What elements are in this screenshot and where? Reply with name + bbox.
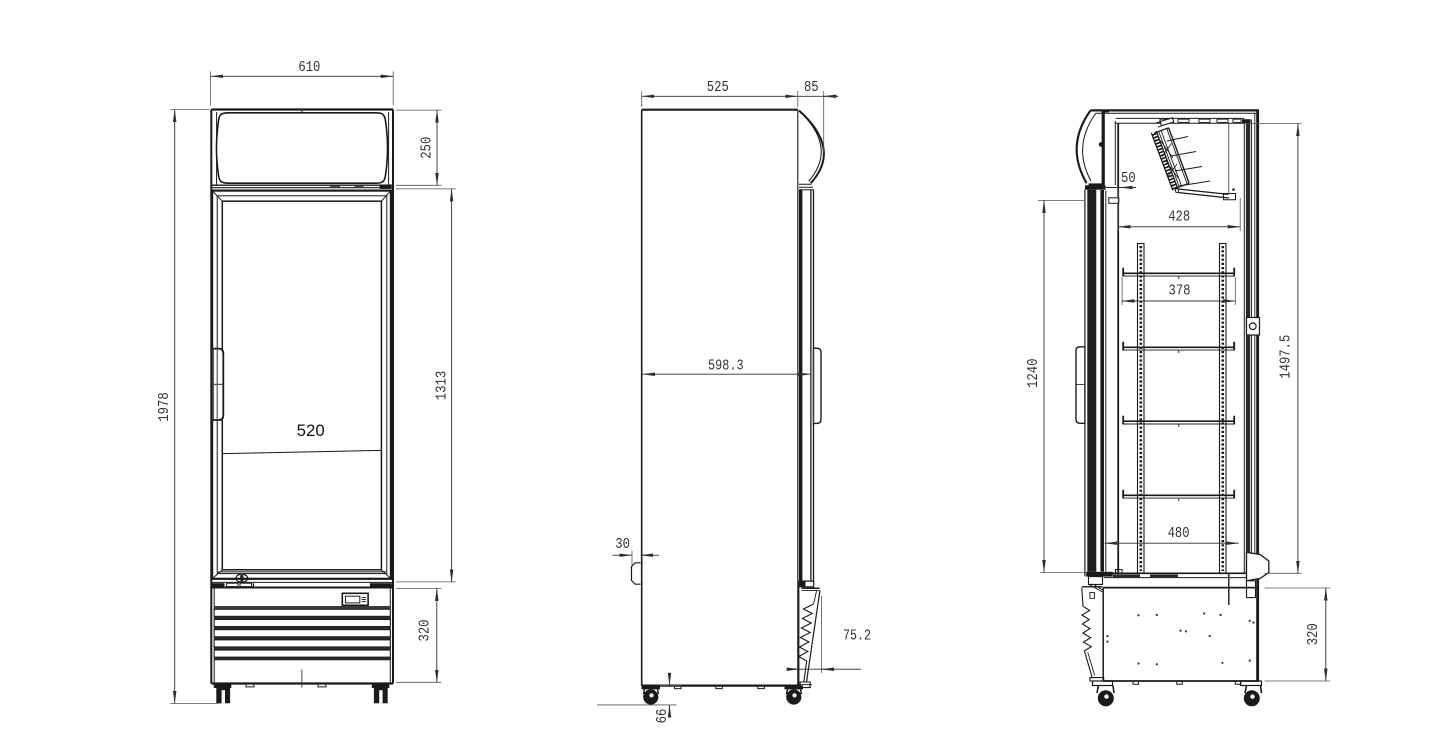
svg-text:50: 50 [1121,170,1136,187]
svg-text:520: 520 [297,422,325,440]
svg-text:1240: 1240 [1025,358,1042,388]
svg-text:85: 85 [804,79,819,96]
svg-text:428: 428 [1168,208,1190,225]
svg-text:66: 66 [654,709,671,724]
svg-text:320: 320 [1305,623,1322,645]
svg-text:250: 250 [419,137,436,159]
svg-text:1313: 1313 [433,371,450,401]
svg-text:320: 320 [416,620,433,642]
svg-text:1978: 1978 [156,392,173,422]
svg-text:598.3: 598.3 [708,358,744,375]
svg-text:610: 610 [298,59,320,76]
svg-text:1497.5: 1497.5 [1278,335,1295,379]
svg-text:480: 480 [1168,525,1190,542]
svg-text:378: 378 [1169,283,1191,300]
svg-text:525: 525 [707,79,729,96]
svg-text:30: 30 [615,536,630,553]
svg-text:75.2: 75.2 [843,628,871,645]
